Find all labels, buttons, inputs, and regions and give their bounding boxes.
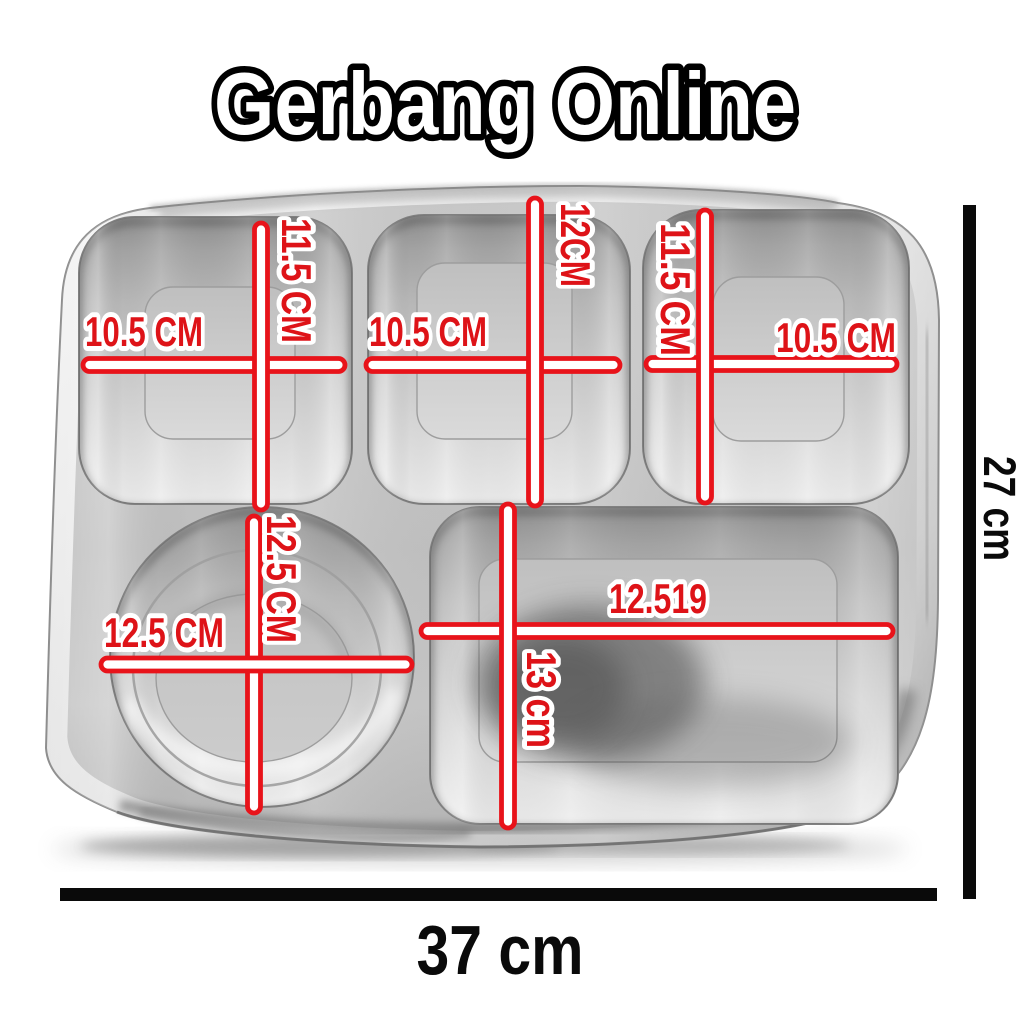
- svg-text:12.519: 12.519: [609, 575, 707, 622]
- svg-text:10.5 CM: 10.5 CM: [776, 314, 896, 361]
- svg-text:10.5 CM: 10.5 CM: [85, 308, 203, 355]
- svg-text:11.5 CM: 11.5 CM: [273, 218, 320, 343]
- svg-text:10.5 CM: 10.5 CM: [369, 308, 487, 355]
- svg-text:13 cm: 13 cm: [518, 651, 565, 748]
- svg-text:12CM: 12CM: [552, 203, 599, 287]
- svg-text:37 cm: 37 cm: [417, 911, 584, 989]
- svg-text:12.5 CM: 12.5 CM: [104, 609, 224, 656]
- svg-text:12.5 CM: 12.5 CM: [258, 515, 305, 643]
- svg-text:Gerbang Online: Gerbang Online: [214, 54, 796, 153]
- svg-text:27 cm: 27 cm: [974, 456, 1024, 561]
- svg-text:11.5 CM: 11.5 CM: [652, 223, 699, 356]
